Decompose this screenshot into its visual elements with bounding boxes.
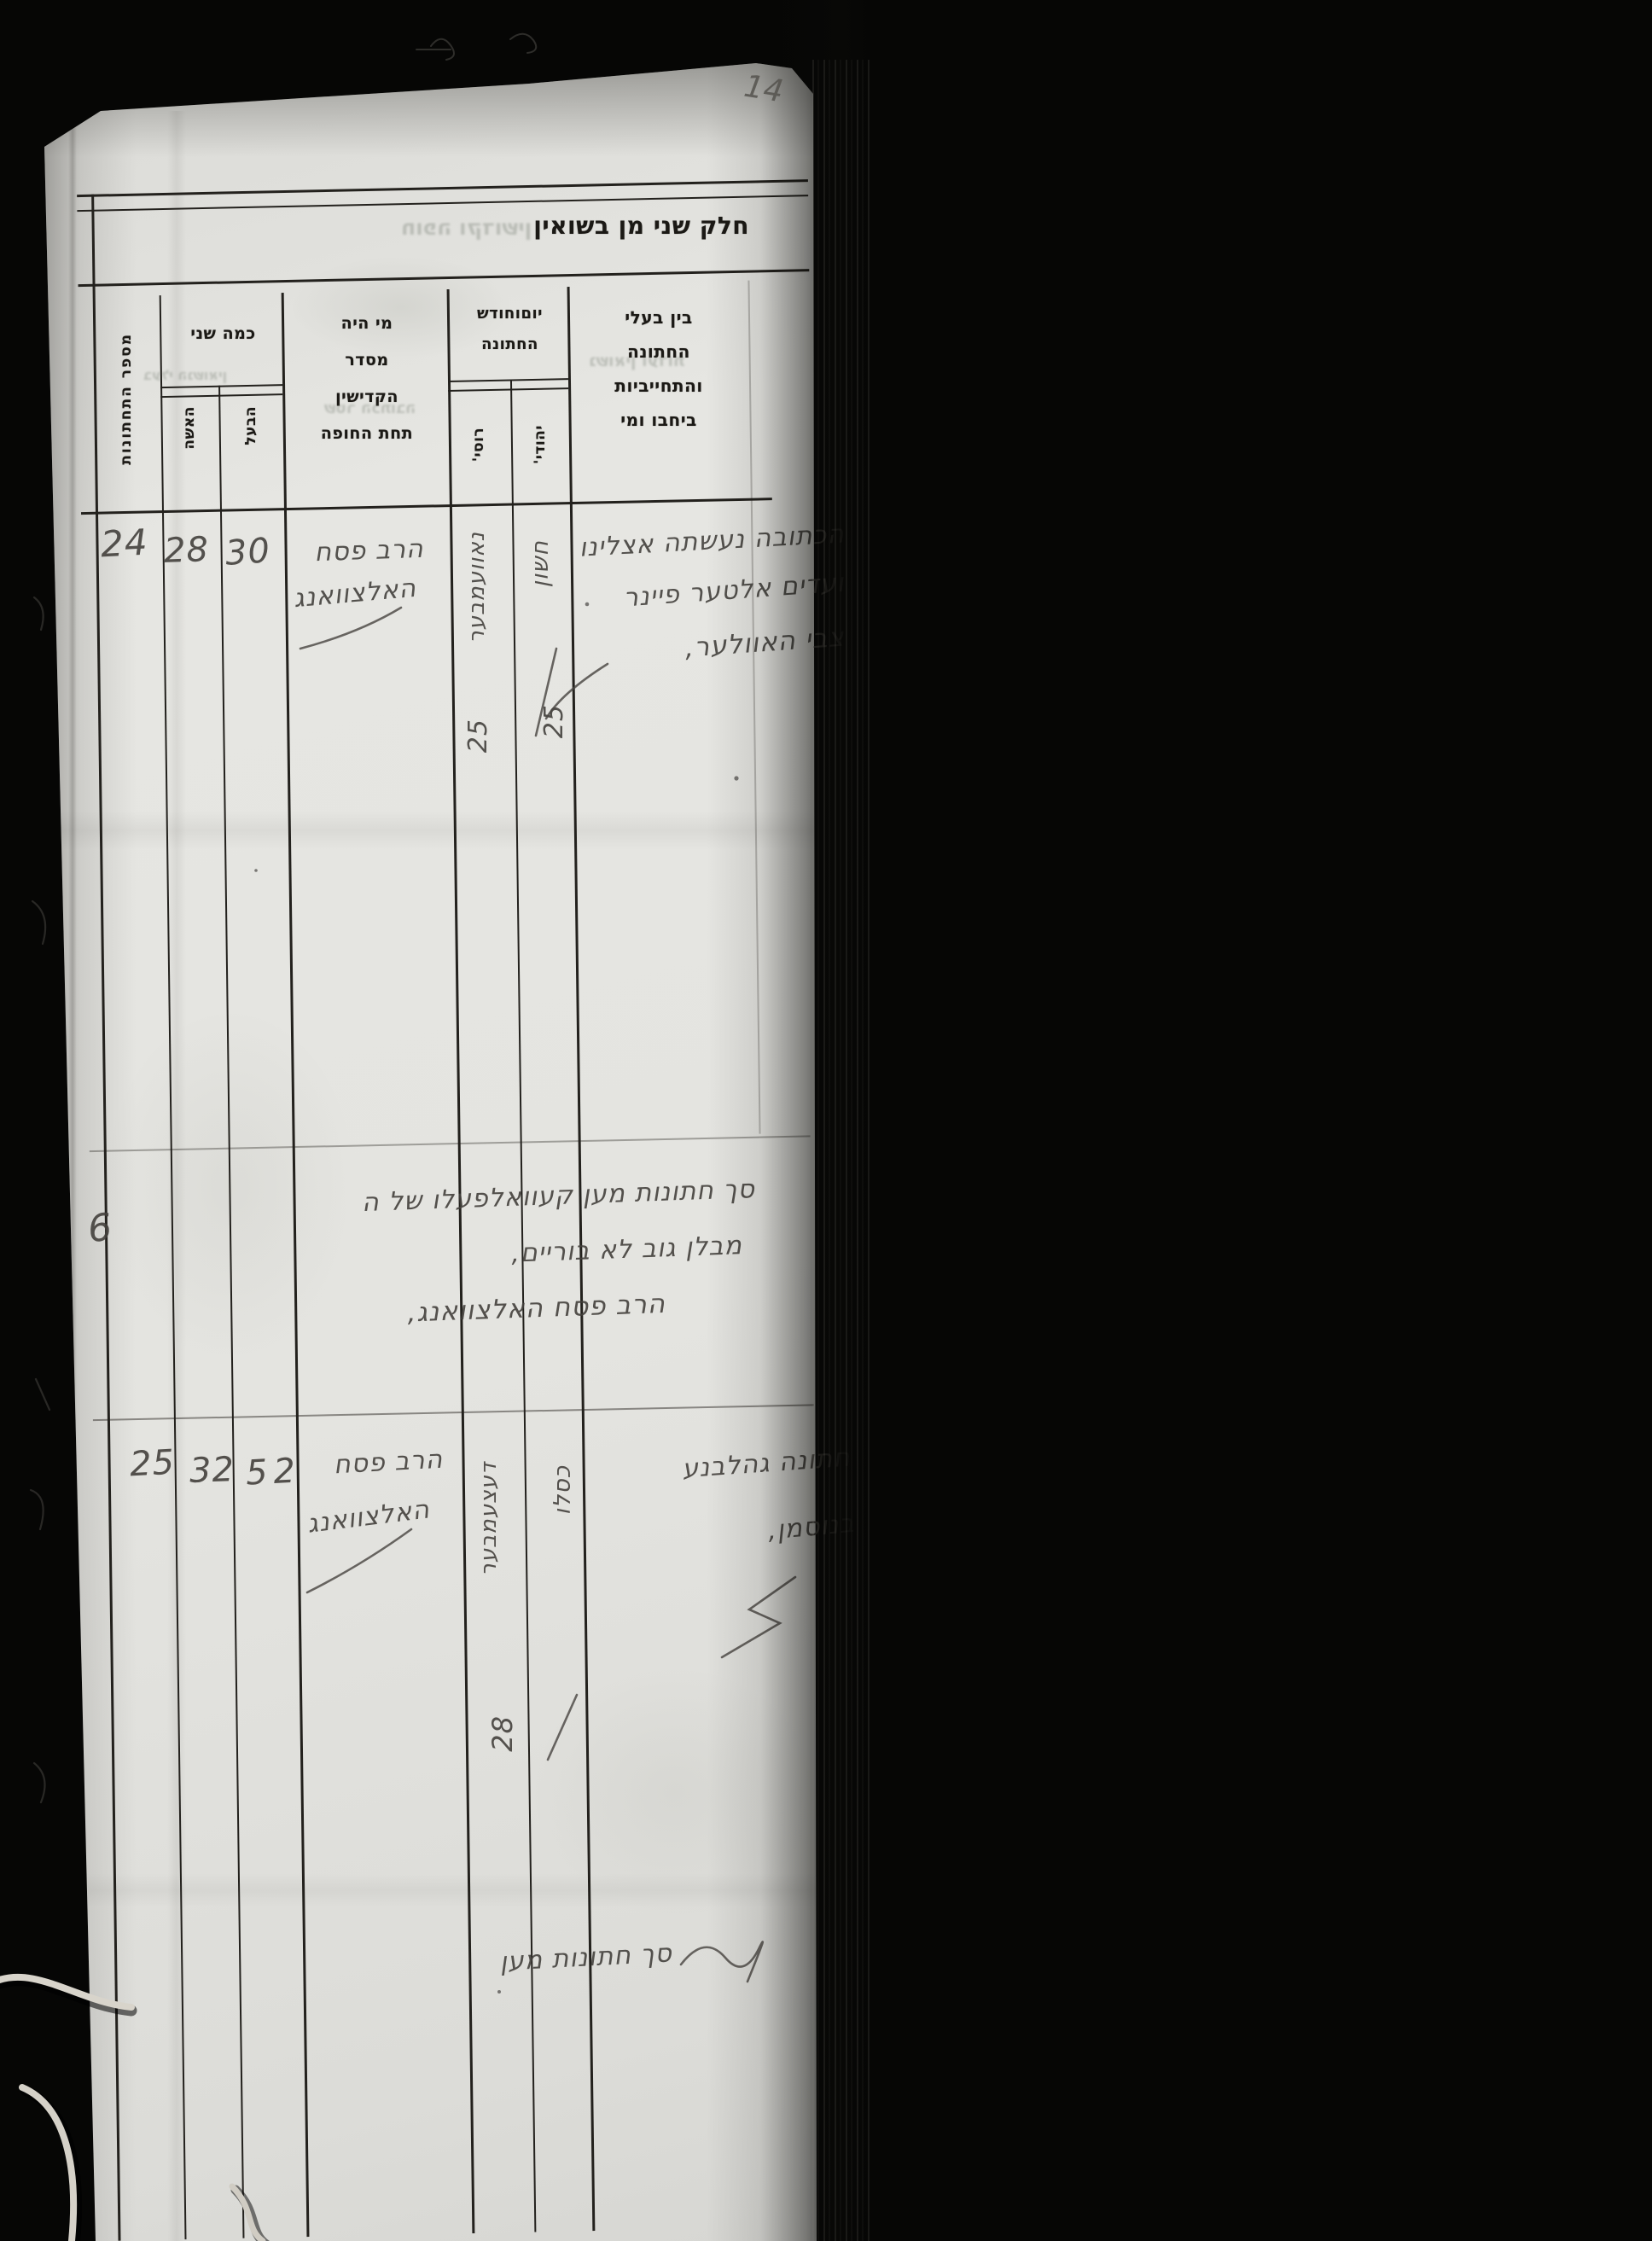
binding-threads-overlay [0,0,1652,2241]
scanned-registry-page: חלק שני מן בשואין חופה וקדושין בין בעלי … [0,0,1652,2241]
binding-thread [22,2087,73,2241]
binding-thread [232,2186,263,2241]
